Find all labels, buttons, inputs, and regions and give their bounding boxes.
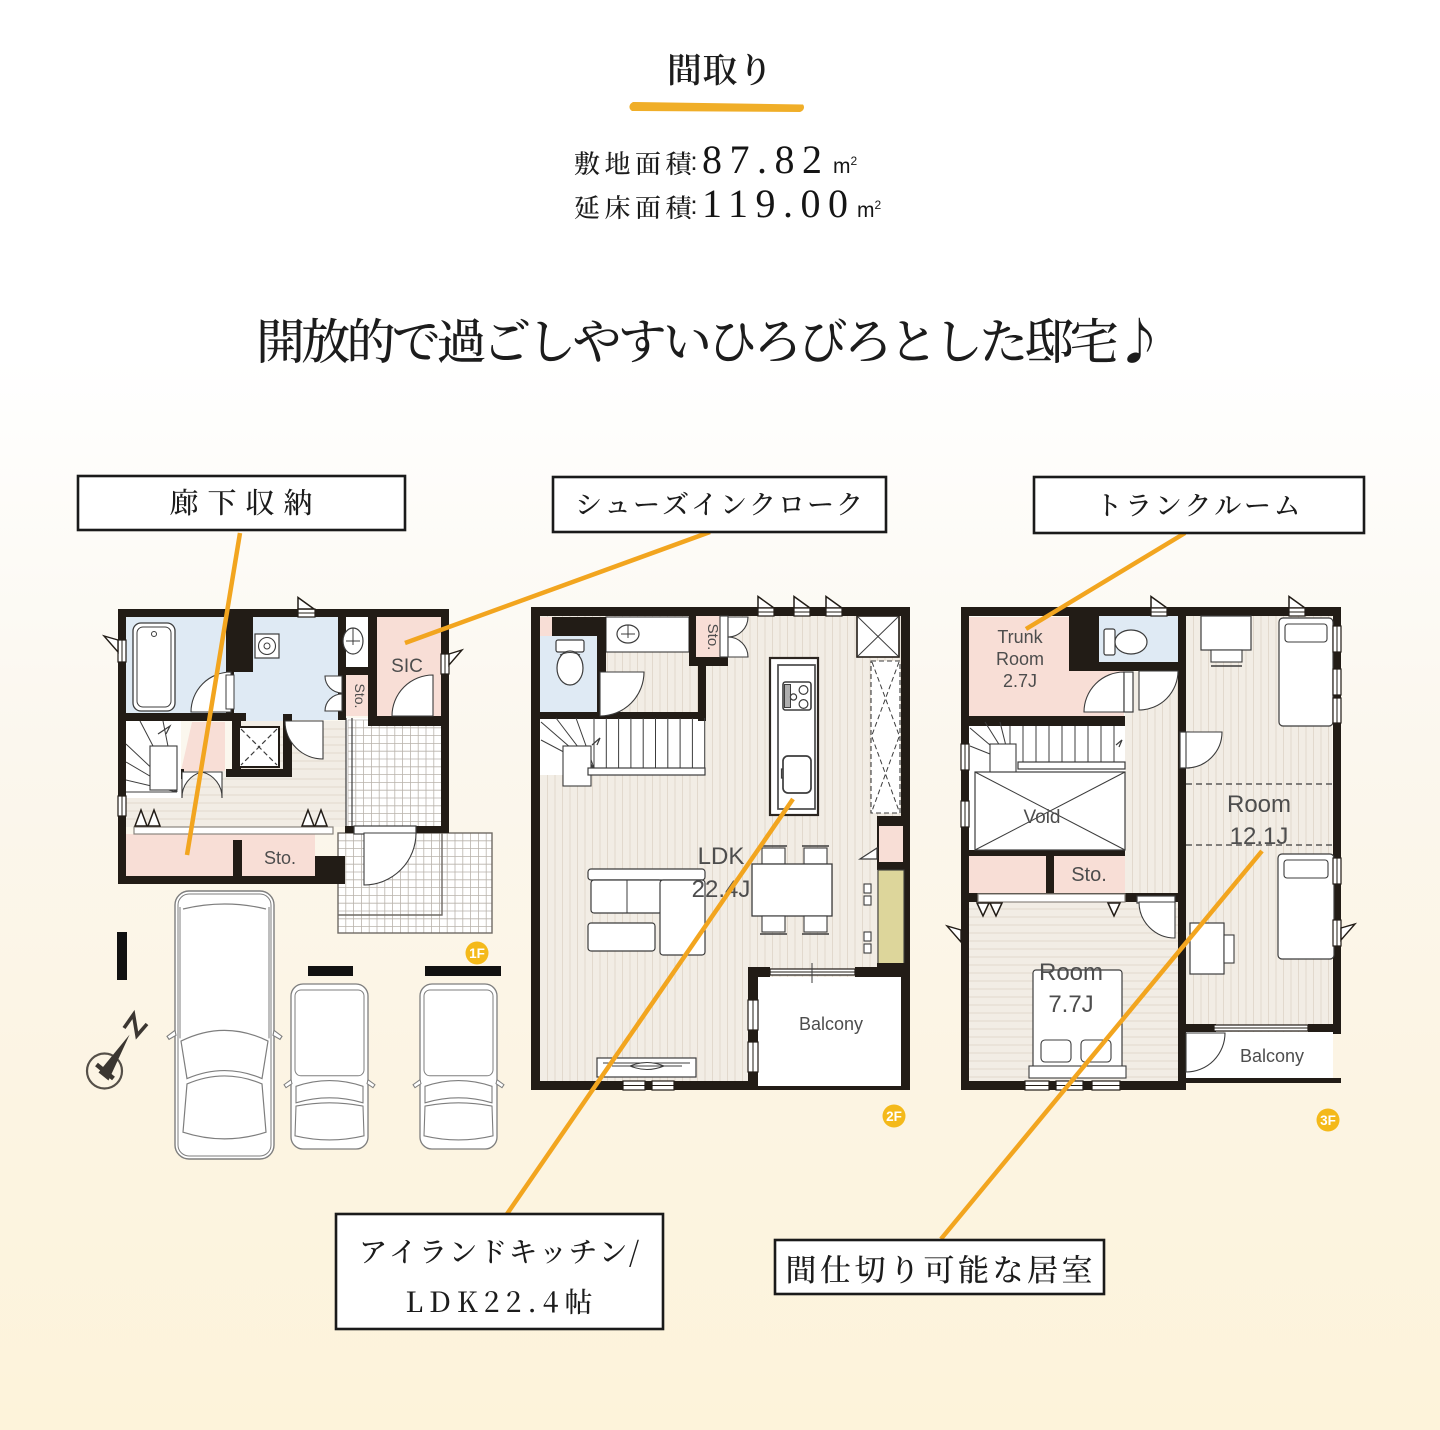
svg-text:Room: Room — [1227, 791, 1291, 818]
svg-text:87.82: 87.82 — [702, 137, 830, 182]
svg-text:Sto.: Sto. — [352, 684, 368, 709]
svg-text:Sto.: Sto. — [264, 848, 296, 868]
svg-text:22.4J: 22.4J — [692, 876, 751, 903]
svg-text::: : — [690, 190, 697, 220]
svg-text:Sto.: Sto. — [1071, 864, 1107, 886]
svg-text:LDK: LDK — [698, 843, 745, 870]
svg-text:Balcony: Balcony — [799, 1014, 863, 1034]
svg-text:119.00: 119.00 — [702, 181, 856, 226]
svg-text:Sto.: Sto. — [704, 624, 721, 651]
svg-text:2F: 2F — [886, 1109, 902, 1124]
svg-text:1F: 1F — [469, 946, 485, 961]
svg-text:Room: Room — [996, 649, 1044, 669]
svg-text:12.1J: 12.1J — [1230, 823, 1289, 850]
svg-text:Balcony: Balcony — [1240, 1046, 1304, 1066]
svg-text:Void: Void — [1024, 807, 1061, 828]
svg-text:7.7J: 7.7J — [1048, 991, 1093, 1018]
svg-text::: : — [690, 146, 697, 176]
svg-text:Room: Room — [1039, 959, 1103, 986]
svg-text:2.7J: 2.7J — [1003, 671, 1037, 691]
svg-text:3F: 3F — [1320, 1113, 1336, 1128]
svg-text:SIC: SIC — [391, 656, 423, 677]
svg-text:m2: m2 — [833, 154, 858, 178]
svg-text:m2: m2 — [857, 198, 882, 222]
svg-text:Trunk: Trunk — [997, 627, 1043, 647]
